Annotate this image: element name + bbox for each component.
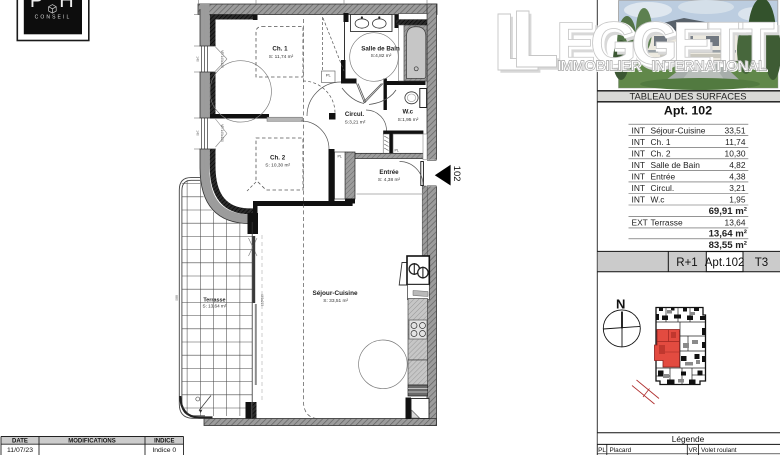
svg-text:VR: VR [689, 447, 698, 454]
svg-text:13,64: 13,64 [725, 218, 746, 228]
svg-text:S: 4,38 m²: S: 4,38 m² [378, 177, 401, 183]
svg-text:Légende: Légende [672, 434, 705, 444]
svg-text:EXT: EXT [632, 218, 648, 228]
svg-text:H: H [59, 0, 73, 12]
svg-text:Ch. 2: Ch. 2 [651, 148, 671, 158]
svg-text:VR 140x120: VR 140x120 [220, 124, 224, 142]
svg-text:69,91 m²: 69,91 m² [709, 206, 747, 217]
svg-text:INT: INT [632, 183, 646, 193]
svg-text:Terrasse: Terrasse [203, 298, 225, 304]
svg-text:Séjour-Cuisine: Séjour-Cuisine [651, 125, 706, 135]
svg-text:11/07/23: 11/07/23 [7, 447, 33, 454]
svg-text:T3: T3 [755, 257, 768, 269]
svg-text:Placard: Placard [610, 447, 632, 454]
svg-text:Apt. 102: Apt. 102 [664, 104, 712, 118]
svg-text:S: 10,30 m²: S: 10,30 m² [265, 163, 290, 169]
svg-text:Indice 0: Indice 0 [152, 447, 176, 454]
svg-text:Entrée: Entrée [651, 172, 676, 182]
svg-text:S:1,95 m²: S:1,95 m² [398, 117, 419, 123]
svg-text:W.c: W.c [651, 195, 665, 205]
svg-text:Salle de Bain: Salle de Bain [651, 160, 701, 170]
svg-text:Circul.: Circul. [345, 111, 365, 118]
svg-text:P: P [30, 0, 43, 12]
svg-text:Salle de Bain: Salle de Bain [361, 45, 400, 52]
svg-text:DATE: DATE [12, 439, 28, 445]
svg-text:INDICE: INDICE [154, 439, 174, 445]
svg-text:INT: INT [632, 148, 646, 158]
svg-text:13,64 m²: 13,64 m² [709, 228, 747, 239]
svg-text:4,38: 4,38 [729, 172, 746, 182]
svg-text:102: 102 [451, 166, 462, 182]
svg-text:S:4,82 m²: S:4,82 m² [371, 53, 392, 59]
svg-text:INT: INT [632, 137, 646, 147]
svg-text:TABLEAU DES SURFACES: TABLEAU DES SURFACES [629, 90, 746, 101]
svg-text:INTERNATIONAL: INTERNATIONAL [651, 58, 767, 75]
svg-text:10,30: 10,30 [725, 148, 746, 158]
svg-text:Entrée: Entrée [379, 169, 399, 176]
svg-text:Ch. 2: Ch. 2 [270, 154, 286, 161]
svg-text:INT: INT [632, 172, 646, 182]
svg-text:Ch. 1: Ch. 1 [651, 137, 671, 147]
svg-text:N: N [616, 297, 625, 312]
svg-text:3,21: 3,21 [729, 183, 746, 193]
svg-text:PL: PL [598, 447, 606, 454]
svg-text:83,55 m²: 83,55 m² [709, 240, 747, 251]
svg-text:S: 13,64 m²: S: 13,64 m² [203, 304, 227, 309]
svg-text:MODIFICATIONS: MODIFICATIONS [68, 439, 116, 445]
svg-text:INT: INT [632, 125, 646, 135]
svg-text:CONSEIL: CONSEIL [35, 14, 72, 20]
svg-text:PL: PL [326, 73, 332, 78]
svg-text:INT: INT [632, 160, 646, 170]
svg-text:PL: PL [395, 149, 399, 153]
svg-text:140: 140 [196, 130, 200, 136]
svg-text:33,51: 33,51 [725, 125, 746, 135]
svg-text:VR 140x120: VR 140x120 [220, 50, 224, 68]
svg-text:440x215: 440x215 [260, 294, 264, 306]
svg-text:880: 880 [175, 295, 179, 301]
svg-text:Séjour-Cuisine: Séjour-Cuisine [312, 290, 358, 297]
svg-text:11,74: 11,74 [725, 137, 746, 147]
svg-text:140: 140 [196, 56, 200, 62]
svg-text:4,82: 4,82 [729, 160, 746, 170]
svg-text:Ch. 1: Ch. 1 [272, 46, 288, 53]
svg-text:W.c: W.c [402, 109, 413, 116]
svg-text:S: 11,74 m²: S: 11,74 m² [269, 54, 294, 60]
svg-text:PL: PL [337, 155, 341, 159]
svg-text:Terrasse: Terrasse [651, 218, 683, 228]
svg-text:S:3,21 m²: S:3,21 m² [345, 120, 366, 126]
svg-text:Apt.102: Apt.102 [705, 257, 745, 269]
svg-text:S: 33,51 m²: S: 33,51 m² [323, 298, 348, 304]
svg-text:Volet roulant: Volet roulant [701, 447, 737, 454]
svg-text:R+1: R+1 [676, 257, 697, 269]
svg-text:1,95: 1,95 [729, 195, 746, 205]
svg-text:INT: INT [632, 195, 646, 205]
svg-text:IMMOBILIER: IMMOBILIER [557, 58, 641, 75]
svg-text:Circul.: Circul. [651, 183, 675, 193]
